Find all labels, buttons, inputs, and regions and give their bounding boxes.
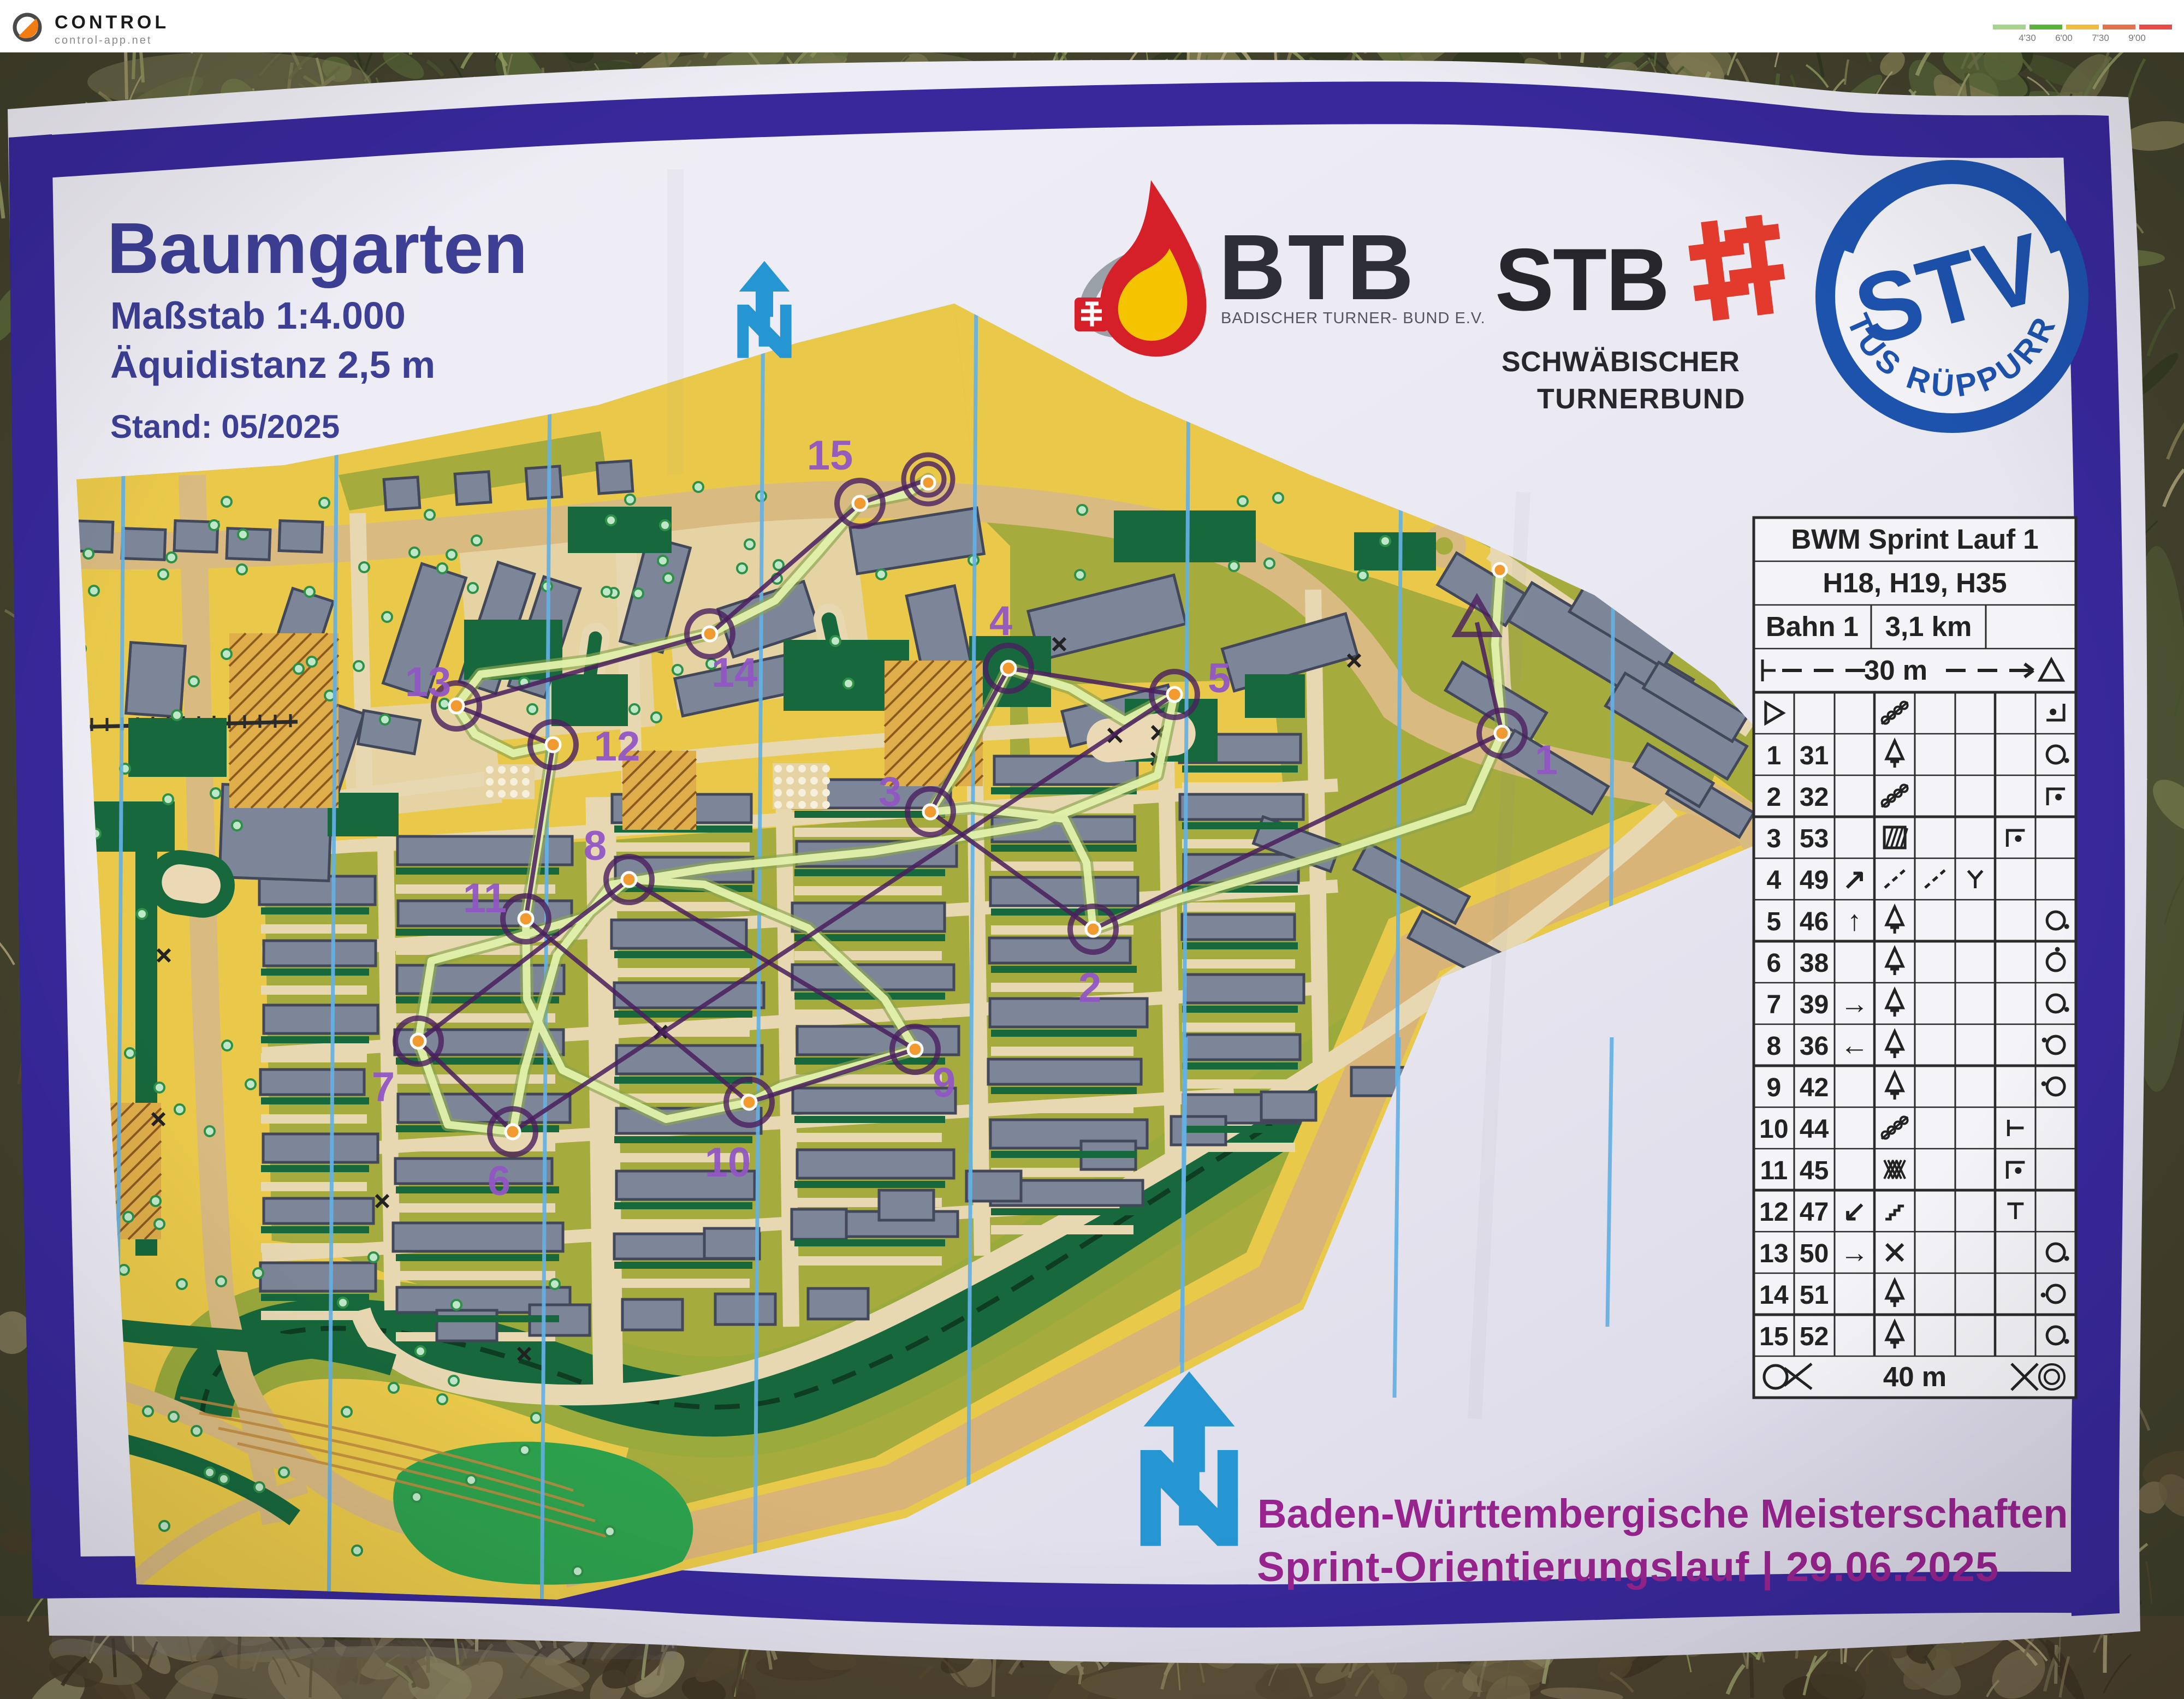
svg-text:7'30: 7'30: [2092, 33, 2109, 43]
svg-text:CONTROL: CONTROL: [55, 12, 169, 33]
svg-text:control-app.net: control-app.net: [55, 34, 152, 46]
svg-text:9'00: 9'00: [2128, 33, 2146, 43]
svg-text:6'00: 6'00: [2055, 33, 2073, 43]
svg-text:4'30: 4'30: [2019, 33, 2036, 43]
